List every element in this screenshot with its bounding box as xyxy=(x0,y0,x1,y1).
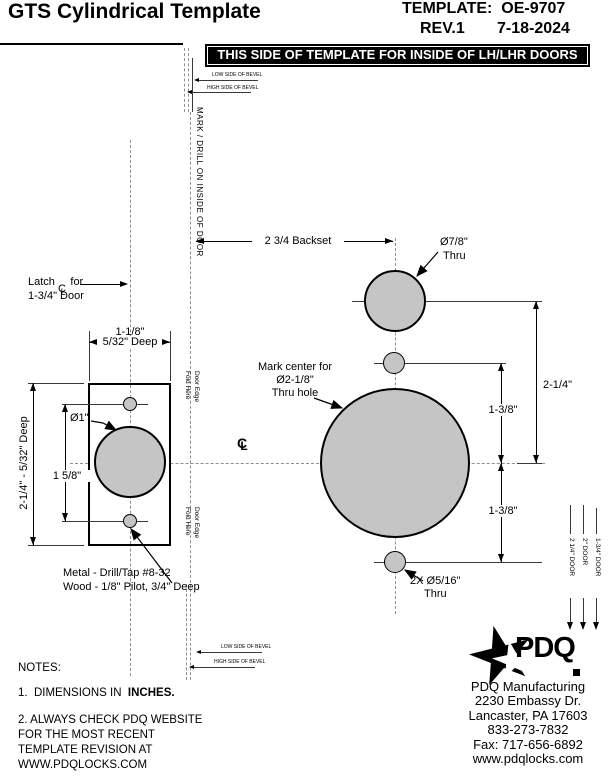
center-note-leader xyxy=(314,398,342,408)
low-bevel-arrow-top xyxy=(194,78,199,82)
backset-arrow-right xyxy=(385,238,393,244)
door-mark-arrow3 xyxy=(593,622,599,630)
lower-dim-arrow-bottom xyxy=(498,554,504,562)
banner-text: THIS SIDE OF TEMPLATE FOR INSIDE OF LH/L… xyxy=(207,46,588,65)
backset-arrow-left xyxy=(196,238,204,244)
pdq-logo-text: PDQ xyxy=(515,642,575,654)
upper-dim-arrow-top xyxy=(498,363,504,371)
bore-dia-leader xyxy=(91,421,116,430)
total-dim-arrow-top xyxy=(533,301,539,309)
banner: THIS SIDE OF TEMPLATE FOR INSIDE OF LH/L… xyxy=(205,44,590,67)
width-arrow-left xyxy=(89,339,97,345)
door-mark-arrow2 xyxy=(580,622,586,630)
width-arrow-right xyxy=(162,339,170,345)
total-dim-arrow-bottom xyxy=(533,455,539,463)
lower-dim-arrow-top xyxy=(498,463,504,471)
screw-spacing-arrow-top xyxy=(62,404,68,412)
pdq-logo-period xyxy=(573,669,580,676)
template-sheet: GTS Cylindrical Template TEMPLATE: OE-97… xyxy=(0,0,609,778)
mount-hole-leader xyxy=(405,570,423,581)
door-mark-arrow1 xyxy=(567,622,573,630)
latch-bore-leader xyxy=(417,252,438,276)
screw-spacing-arrow-bottom xyxy=(62,513,68,521)
screw-note-leader xyxy=(131,529,172,583)
high-bevel-arrow-bottom xyxy=(189,665,194,669)
height-arrow-bottom xyxy=(30,537,36,545)
latch-leader-arrow xyxy=(120,281,128,287)
high-bevel-arrow-top xyxy=(187,90,192,94)
upper-dim-arrow-bottom xyxy=(498,455,504,463)
height-arrow-top xyxy=(30,383,36,391)
low-bevel-arrow-bottom xyxy=(196,650,201,654)
